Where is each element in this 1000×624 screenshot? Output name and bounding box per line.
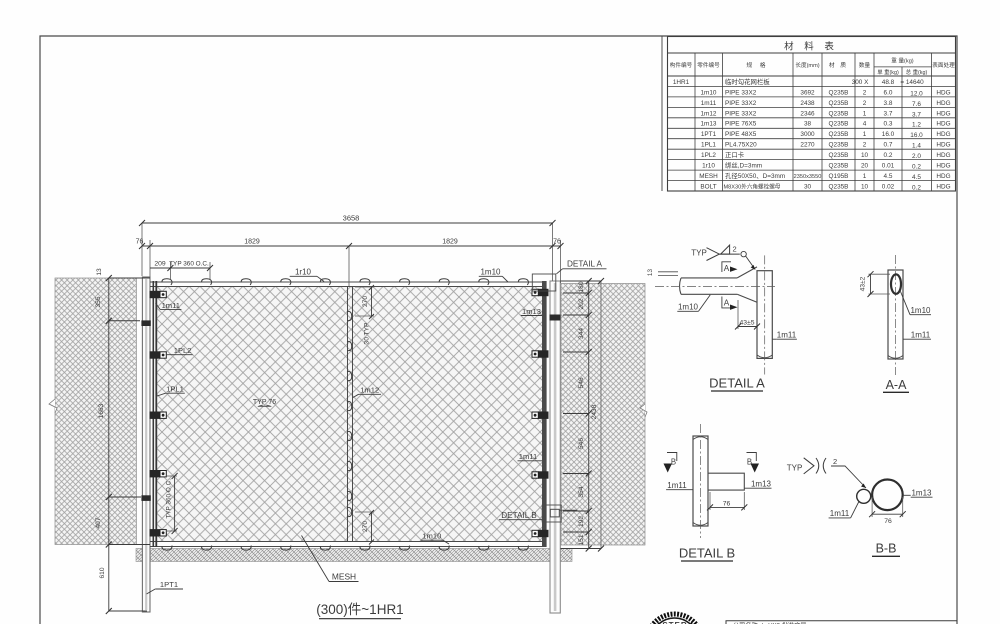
svg-text:临时勾花网栏板: 临时勾花网栏板 [725, 77, 770, 86]
svg-text:DETAIL B: DETAIL B [501, 511, 537, 520]
svg-text:1PL2: 1PL2 [701, 152, 716, 159]
svg-text:30: 30 [804, 183, 812, 190]
svg-text:43±5: 43±5 [739, 320, 754, 327]
svg-text:2: 2 [733, 245, 737, 254]
svg-text:0.3: 0.3 [884, 121, 893, 128]
svg-text:1PT1: 1PT1 [160, 580, 178, 589]
svg-text:1PL1: 1PL1 [166, 385, 184, 394]
svg-text:407: 407 [95, 517, 102, 528]
svg-text:43±2: 43±2 [860, 276, 867, 291]
svg-text:151: 151 [578, 534, 585, 545]
svg-text:1663: 1663 [98, 403, 105, 418]
svg-text:M8X30外六角螺栓螺母: M8X30外六角螺栓螺母 [724, 182, 781, 190]
svg-text:TYP: TYP [691, 249, 707, 258]
svg-text:HDG: HDG [936, 173, 950, 180]
svg-text:2: 2 [863, 89, 867, 96]
svg-text:76: 76 [136, 239, 144, 246]
svg-text:16.0: 16.0 [910, 132, 923, 139]
svg-text:354: 354 [578, 486, 585, 497]
svg-text:Q235B: Q235B [829, 89, 849, 96]
svg-text:正口卡: 正口卡 [725, 150, 745, 159]
svg-text:6.0: 6.0 [884, 89, 893, 96]
svg-text:Q235B: Q235B [829, 142, 849, 149]
svg-text:1m11: 1m11 [667, 481, 687, 490]
svg-text:孔径50X50、D=3mm: 孔径50X50、D=3mm [725, 171, 785, 180]
svg-text:PIPE 76X5: PIPE 76X5 [725, 121, 757, 128]
svg-text:192: 192 [578, 516, 585, 527]
svg-text:3692: 3692 [800, 89, 815, 96]
svg-text:1: 1 [863, 173, 867, 180]
svg-text:1PL2: 1PL2 [174, 346, 192, 355]
svg-text:48.8: 48.8 [882, 79, 895, 86]
svg-text:Q235B: Q235B [829, 110, 849, 117]
svg-text:20: 20 [861, 163, 869, 170]
svg-text:3.7: 3.7 [884, 110, 893, 117]
svg-text:1829: 1829 [442, 239, 458, 246]
svg-text:0.7: 0.7 [884, 142, 893, 149]
svg-text:38: 38 [804, 121, 812, 128]
svg-text:300 X: 300 X [852, 79, 869, 86]
svg-text:2438: 2438 [591, 404, 598, 419]
svg-text:30 TYP: 30 TYP [364, 322, 371, 344]
svg-text:2: 2 [863, 142, 867, 149]
svg-text:(300)件~1HR1: (300)件~1HR1 [316, 602, 403, 617]
svg-text:= 14640: = 14640 [900, 79, 924, 86]
svg-text:1r10: 1r10 [295, 268, 312, 277]
svg-text:零件编号: 零件编号 [697, 61, 720, 69]
svg-text:13: 13 [96, 268, 103, 276]
svg-text:TYP 360 O.C.: TYP 360 O.C. [169, 261, 209, 268]
svg-text:构件编号: 构件编号 [670, 61, 693, 69]
svg-text:16.0: 16.0 [882, 131, 895, 138]
svg-text:HDG: HDG [936, 152, 950, 159]
svg-text:材 料 表: 材 料 表 [784, 41, 838, 53]
svg-text:PIPE 48X5: PIPE 48X5 [725, 131, 757, 138]
svg-text:材 质: 材 质 [829, 61, 848, 69]
svg-text:1m11: 1m11 [830, 509, 850, 518]
svg-text:270: 270 [362, 521, 369, 532]
svg-text:1.4: 1.4 [912, 143, 921, 150]
svg-text:1m13: 1m13 [911, 488, 932, 497]
svg-text:1m10: 1m10 [678, 303, 699, 312]
svg-text:MESH: MESH [699, 173, 718, 180]
svg-text:0.02: 0.02 [882, 183, 895, 190]
svg-text:表面处理: 表面处理 [932, 61, 955, 69]
svg-text:Q235B: Q235B [829, 163, 849, 170]
svg-text:202: 202 [578, 298, 585, 309]
svg-text:0.2: 0.2 [884, 152, 893, 159]
svg-text:PL4.75X20: PL4.75X20 [725, 142, 757, 149]
svg-text:长度(mm): 长度(mm) [795, 61, 819, 69]
svg-text:A: A [724, 264, 730, 273]
svg-text:3.7: 3.7 [912, 111, 921, 118]
svg-text:HDG: HDG [936, 121, 950, 128]
svg-text:344: 344 [578, 328, 585, 339]
svg-text:546: 546 [578, 377, 585, 388]
svg-text:1m10: 1m10 [422, 532, 441, 541]
svg-text:A: A [724, 299, 730, 308]
svg-text:0.01: 0.01 [882, 163, 895, 170]
svg-text:Q235B: Q235B [829, 183, 849, 190]
svg-text:A-A: A-A [886, 378, 908, 392]
svg-text:B-B: B-B [876, 542, 897, 556]
svg-text:HDG: HDG [936, 183, 950, 190]
svg-text:2438: 2438 [800, 100, 815, 107]
svg-text:1r10: 1r10 [702, 163, 715, 170]
svg-text:1m10: 1m10 [480, 268, 501, 277]
svg-text:2.0: 2.0 [912, 153, 921, 160]
svg-text:Q235B: Q235B [829, 131, 849, 138]
svg-text:209: 209 [154, 261, 166, 268]
svg-text:重 量(kg): 重 量(kg) [891, 57, 914, 65]
svg-text:1m13: 1m13 [701, 121, 717, 128]
svg-text:规 格: 规 格 [746, 61, 768, 69]
svg-text:1m11: 1m11 [701, 100, 717, 107]
svg-text:1m11: 1m11 [519, 452, 537, 461]
svg-text:1m13: 1m13 [522, 307, 541, 316]
svg-text:2346: 2346 [800, 110, 815, 117]
svg-text:TYP 360 O.C.: TYP 360 O.C. [165, 479, 172, 519]
svg-text:绑丝,D=3mm: 绑丝,D=3mm [725, 161, 762, 170]
svg-text:355: 355 [95, 296, 102, 307]
svg-text:总 重(kg): 总 重(kg) [906, 68, 928, 76]
svg-text:1: 1 [863, 110, 867, 117]
svg-text:HDG: HDG [936, 110, 950, 117]
svg-text:1m11: 1m11 [777, 330, 797, 339]
svg-text:1m10: 1m10 [701, 89, 717, 96]
svg-text:TYP: TYP [787, 464, 803, 473]
svg-text:610: 610 [99, 567, 106, 578]
svg-text:4.5: 4.5 [884, 173, 893, 180]
svg-text:2350x3550: 2350x3550 [794, 174, 822, 180]
svg-text:12.0: 12.0 [910, 90, 923, 97]
svg-text:HDG: HDG [936, 100, 950, 107]
svg-text:180: 180 [578, 281, 585, 292]
svg-text:1m12: 1m12 [701, 110, 717, 117]
svg-text:3.8: 3.8 [884, 100, 893, 107]
svg-text:DETAIL A: DETAIL A [709, 376, 765, 391]
svg-text:1PL1: 1PL1 [701, 142, 716, 149]
svg-text:Q195B: Q195B [829, 173, 849, 180]
svg-text:3000: 3000 [800, 131, 815, 138]
svg-text:DETAIL A: DETAIL A [567, 260, 603, 269]
svg-text:HDG: HDG [936, 142, 950, 149]
svg-text:TYP 76: TYP 76 [253, 399, 276, 406]
svg-text:PIPE 33X2: PIPE 33X2 [725, 89, 757, 96]
svg-text:0.2: 0.2 [912, 164, 921, 171]
svg-text:10: 10 [861, 183, 869, 190]
svg-text:1m12: 1m12 [360, 386, 379, 395]
svg-text:PIPE 33X2: PIPE 33X2 [725, 110, 757, 117]
svg-text:PIPE 33X2: PIPE 33X2 [725, 100, 757, 107]
svg-text:2: 2 [863, 100, 867, 107]
svg-text:76: 76 [723, 500, 731, 507]
svg-text:4.5: 4.5 [912, 174, 921, 181]
svg-text:76: 76 [884, 518, 892, 525]
svg-text:Q235B: Q235B [829, 100, 849, 107]
svg-text:1m10: 1m10 [910, 306, 931, 315]
svg-text:1.2: 1.2 [912, 122, 921, 129]
svg-text:1829: 1829 [244, 239, 260, 246]
svg-text:1PT1: 1PT1 [701, 131, 717, 138]
svg-text:Q235B: Q235B [829, 152, 849, 159]
svg-text:1HR1: 1HR1 [673, 79, 690, 86]
svg-text:B: B [671, 458, 676, 467]
svg-text:10: 10 [861, 152, 869, 159]
svg-text:2270: 2270 [800, 142, 815, 149]
svg-text:HDG: HDG [936, 131, 950, 138]
svg-text:BOLT: BOLT [700, 183, 716, 190]
svg-text:4: 4 [863, 121, 867, 128]
svg-text:270: 270 [362, 296, 369, 307]
svg-text:7.6: 7.6 [912, 101, 921, 108]
svg-text:76: 76 [553, 239, 561, 246]
svg-text:546: 546 [578, 438, 585, 449]
svg-text:数量: 数量 [859, 61, 871, 69]
svg-text:13: 13 [647, 269, 654, 277]
svg-text:HDG: HDG [936, 163, 950, 170]
svg-text:Q235B: Q235B [829, 121, 849, 128]
svg-text:1: 1 [863, 131, 867, 138]
svg-text:DETAIL B: DETAIL B [679, 546, 735, 561]
svg-text:单 重(kg): 单 重(kg) [877, 68, 899, 76]
svg-text:MESH: MESH [332, 572, 356, 582]
svg-text:1m13: 1m13 [751, 479, 772, 488]
svg-text:1m11: 1m11 [162, 301, 180, 310]
svg-text:1m11: 1m11 [911, 330, 931, 339]
svg-text:HDG: HDG [936, 89, 950, 96]
svg-text:0.2: 0.2 [912, 184, 921, 191]
svg-text:3658: 3658 [343, 214, 360, 223]
svg-text:2: 2 [833, 457, 837, 466]
